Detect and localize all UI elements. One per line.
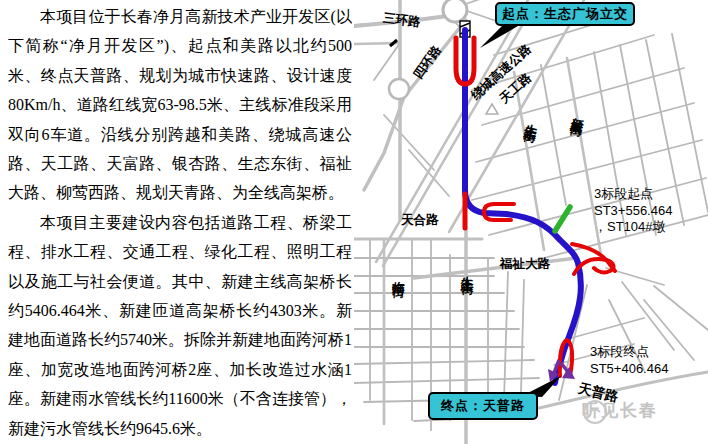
section3-start-chainage: ST3+556.464 (594, 203, 672, 220)
section-divider-green (555, 207, 570, 231)
watermark-logo-icon (582, 399, 608, 425)
west-roundabout (389, 79, 409, 99)
route-map: 三环路 四环路 绕城高速公路 天工路 生态东街 新城大街 天合路 临河街 生态大… (354, 0, 708, 444)
road-label-tianhelu: 天合路 (401, 212, 439, 229)
watermark: 听见长春 (582, 399, 658, 422)
project-description: 本项目位于长春净月高新技术产业开发区(以下简称“净月开发区”)、起点和美路以北约… (8, 2, 352, 442)
section3-start-title: 3标段起点 (594, 186, 672, 203)
paragraph-project-content: 本项目主要建设内容包括道路工程、桥梁工程、排水工程、交通工程、绿化工程、照明工程… (8, 208, 352, 442)
end-point-callout: 终点：天普路 (428, 392, 538, 420)
map-triangle-symbol (486, 104, 498, 114)
page: 本项目位于长春净月高新技术产业开发区(以下简称“净月开发区”)、起点和美路以北约… (0, 0, 708, 444)
road-label-shengtai-dajie: 生态大街 (458, 266, 475, 274)
section3-start-annotation: 3标段起点 ST3+556.464 ，ST104#墩 (594, 186, 672, 236)
section3-start-pier: ，ST104#墩 (594, 219, 672, 236)
paragraph-project-location: 本项目位于长春净月高新技术产业开发区(以下简称“净月开发区”)、起点和美路以北约… (8, 2, 352, 208)
start-point-callout: 起点：生态广场立交 (495, 2, 635, 26)
section3-end-title: 3标段终点 (590, 344, 668, 361)
section3-end-annotation: 3标段终点 ST5+406.464 (590, 344, 668, 377)
section3-end-chainage: ST5+406.464 (590, 361, 668, 378)
road-label-linhejie: 临河街 (389, 271, 406, 277)
plaza-roundabout (443, 0, 467, 22)
road-label-fuzhi-dalu: 福祉大路 (500, 256, 550, 273)
